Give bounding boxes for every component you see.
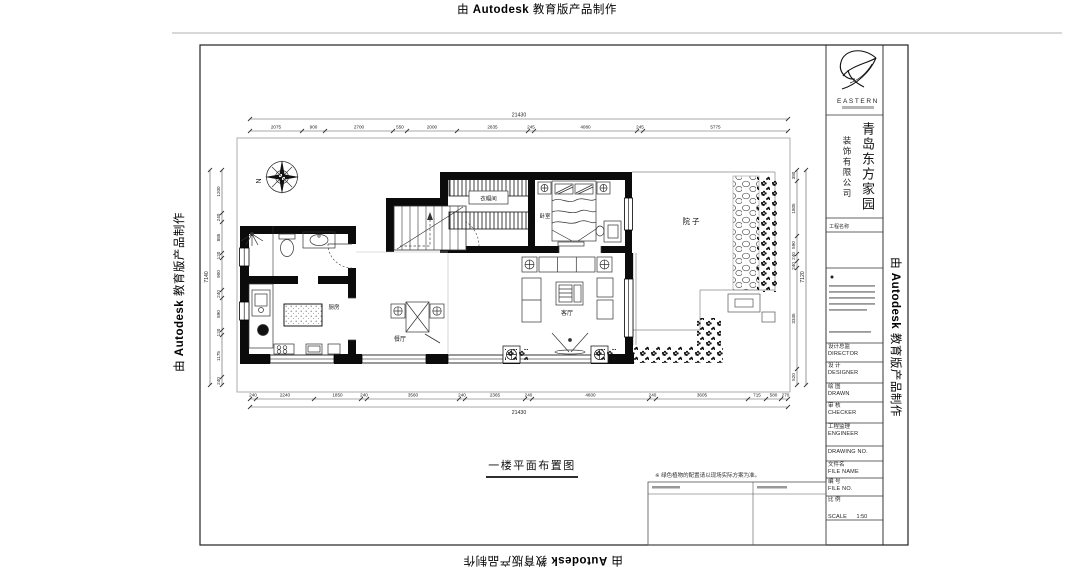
svg-text:240: 240	[216, 213, 221, 221]
svg-text:890: 890	[216, 310, 221, 318]
svg-text:7140: 7140	[204, 271, 210, 283]
flower-bed-east	[757, 176, 777, 292]
svg-text:590: 590	[791, 241, 796, 249]
edu-stamp-brand: Autodesk	[473, 4, 529, 16]
svg-text:240: 240	[458, 393, 466, 398]
svg-text:2240: 2240	[280, 393, 291, 398]
svg-text:1850: 1850	[332, 393, 343, 398]
room-label-courtyard: 院子	[683, 216, 702, 226]
corner-schedule-box	[648, 482, 826, 545]
edu-stamp-pre: 由	[457, 4, 469, 16]
svg-text:4080: 4080	[580, 125, 591, 130]
field-designer: 设 计 DESIGNER	[828, 363, 882, 382]
garden-steps	[728, 294, 775, 322]
room-label-kitchen: 厨房	[328, 303, 340, 311]
edu-stamp-left: 由 Autodesk 教育版产品制作	[171, 212, 187, 372]
company-name-sub: 装饰有限公司	[841, 136, 853, 199]
project-name-label: 工程名称	[829, 223, 849, 230]
svg-text:120: 120	[216, 251, 221, 259]
field-drawn: 绘 图 DRAWN	[828, 384, 882, 401]
svg-text:380: 380	[791, 171, 796, 179]
svg-text:21430: 21430	[512, 113, 527, 119]
svg-text:2075: 2075	[271, 125, 282, 130]
courtyard	[632, 172, 777, 363]
svg-text:245: 245	[636, 125, 644, 130]
edu-stamp-right: 由 Autodesk 教育版产品制作	[888, 257, 904, 417]
svg-text:520: 520	[791, 373, 796, 381]
scale-value: 1:50	[857, 514, 868, 520]
svg-text:2000: 2000	[427, 125, 438, 130]
svg-text:21430: 21430	[512, 410, 527, 416]
svg-text:3345: 3345	[791, 313, 796, 324]
edu-stamp-post: 教育版产品制作	[533, 4, 617, 16]
pebble-path	[733, 176, 759, 290]
room-label-living: 客厅	[561, 309, 573, 317]
svg-text:1200: 1200	[216, 186, 221, 197]
svg-text:885: 885	[216, 233, 221, 241]
svg-text:900: 900	[216, 270, 221, 278]
closet-wardrobes	[449, 179, 529, 229]
living-room-furniture	[522, 257, 613, 354]
edu-stamp-bottom: 由 Autodesk 教育版产品制作	[463, 553, 623, 569]
flower-bed-south	[633, 346, 723, 363]
drawing-title: 一楼平面布置图	[488, 458, 576, 472]
field-checker: 审 核 CHECKER	[828, 403, 882, 422]
svg-text:3605: 3605	[697, 393, 708, 398]
company-name-main: 青岛东方家园	[858, 122, 877, 212]
svg-text:1805: 1805	[791, 203, 796, 214]
svg-text:245: 245	[527, 125, 535, 130]
cad-plot-page: EASTERN 工程名称	[0, 0, 1074, 576]
dimension-labels: 21430 2075 900 2700 550 2000 2835 245 40…	[204, 113, 806, 417]
svg-text:7120: 7120	[800, 271, 806, 283]
svg-text:2700: 2700	[354, 125, 365, 130]
svg-text:5775: 5775	[710, 125, 721, 130]
dining-set	[391, 302, 444, 332]
svg-text:240: 240	[216, 290, 221, 298]
field-file-no: 编 号 FILE NO.	[828, 479, 882, 495]
plan-note: ※ 绿色植物的配置请以现场实际方案为准。	[655, 471, 760, 479]
field-drawing-no: DRAWING NO.	[828, 449, 882, 460]
flower-bed-corner	[697, 318, 721, 348]
titleblock-notes	[829, 276, 875, 333]
eastern-logo	[840, 51, 876, 89]
svg-text:715: 715	[753, 393, 761, 398]
svg-text:240: 240	[791, 252, 796, 260]
field-scale: 比 例 SCALE 1:50	[828, 497, 882, 519]
edu-stamp-top: 由 Autodesk 教育版产品制作	[457, 1, 617, 17]
kitchen-fixtures	[249, 284, 340, 354]
field-director: 设计总监 DIRECTOR	[828, 344, 882, 361]
svg-text:240: 240	[249, 393, 257, 398]
logo-tagline-bar	[842, 106, 874, 109]
svg-text:120: 120	[216, 328, 221, 336]
svg-text:580: 580	[770, 393, 778, 398]
svg-text:1175: 1175	[216, 351, 221, 361]
svg-text:240: 240	[649, 393, 657, 398]
svg-text:240: 240	[791, 262, 796, 270]
field-file-name: 文件名 FILE NAME	[828, 462, 882, 477]
kitchen-island	[284, 304, 322, 326]
room-label-closet: 衣帽间	[480, 195, 497, 203]
svg-text:2835: 2835	[487, 125, 498, 130]
dimensions	[208, 117, 808, 409]
svg-text:270: 270	[782, 393, 790, 398]
compass-rose: N	[256, 160, 299, 194]
logo-wordmark: EASTERN	[837, 98, 879, 105]
svg-text:240: 240	[360, 393, 368, 398]
room-label-bedroom: 卧室	[539, 212, 551, 220]
room-label-dining: 餐厅	[394, 335, 406, 343]
svg-text:550: 550	[396, 125, 404, 130]
window-flowers-right	[594, 349, 618, 360]
svg-text:3560: 3560	[408, 393, 419, 398]
svg-text:240: 240	[216, 377, 221, 385]
svg-text:4600: 4600	[585, 393, 596, 398]
window-flowers-left	[505, 349, 529, 360]
field-engineer: 工程监理 ENGINEER	[828, 424, 882, 445]
svg-text:2365: 2365	[490, 393, 501, 398]
floor-plan-drawing: EASTERN 工程名称	[0, 0, 1074, 576]
svg-text:240: 240	[525, 393, 533, 398]
compass-north-label: N	[256, 178, 263, 183]
svg-text:900: 900	[310, 125, 318, 130]
